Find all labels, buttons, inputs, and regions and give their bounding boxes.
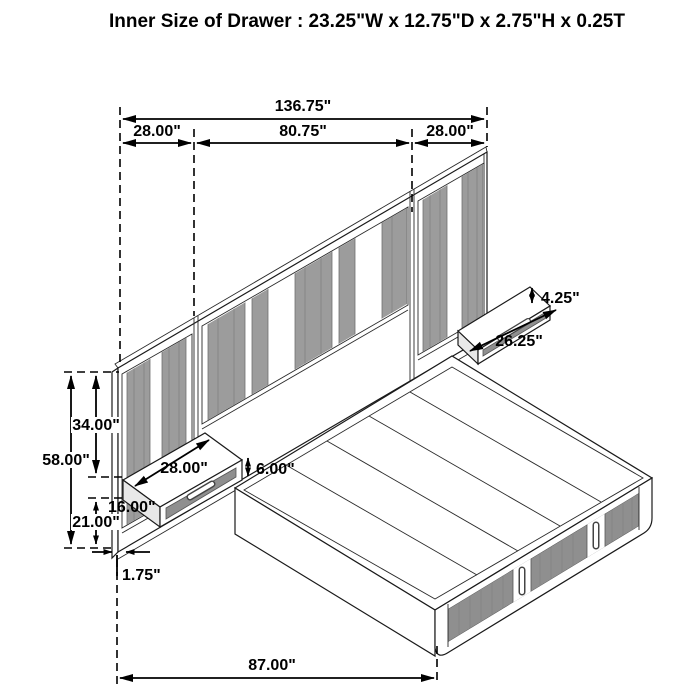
svg-text:28.00": 28.00" xyxy=(426,123,474,140)
svg-text:26.25": 26.25" xyxy=(495,333,543,350)
svg-text:21.00": 21.00" xyxy=(72,514,120,531)
svg-text:80.75": 80.75" xyxy=(279,123,327,140)
dim-left-panel-width: 28.00" xyxy=(123,123,191,143)
svg-text:87.00": 87.00" xyxy=(248,657,296,674)
svg-text:4.25": 4.25" xyxy=(541,290,580,307)
svg-text:28.00": 28.00" xyxy=(133,123,181,140)
dim-panel-thickness: 1.75" xyxy=(92,552,161,584)
dim-right-panel-width: 28.00" xyxy=(415,123,484,143)
svg-text:1.75": 1.75" xyxy=(122,567,161,584)
svg-text:136.75": 136.75" xyxy=(275,98,332,115)
diagram-canvas: Inner Size of Drawer : 23.25"W x 12.75"D… xyxy=(0,0,700,700)
svg-text:34.00": 34.00" xyxy=(72,417,120,434)
diagram-title: Inner Size of Drawer : 23.25"W x 12.75"D… xyxy=(109,11,625,32)
dim-bed-length: 87.00" xyxy=(120,657,434,678)
bed-dimension-diagram: Inner Size of Drawer : 23.25"W x 12.75"D… xyxy=(0,0,700,700)
svg-text:6.00": 6.00" xyxy=(256,461,295,478)
dim-center-panel-width: 80.75" xyxy=(197,123,409,143)
svg-text:58.00": 58.00" xyxy=(42,452,90,469)
svg-text:28.00": 28.00" xyxy=(160,460,208,477)
dim-overall-width: 136.75" xyxy=(123,98,484,119)
